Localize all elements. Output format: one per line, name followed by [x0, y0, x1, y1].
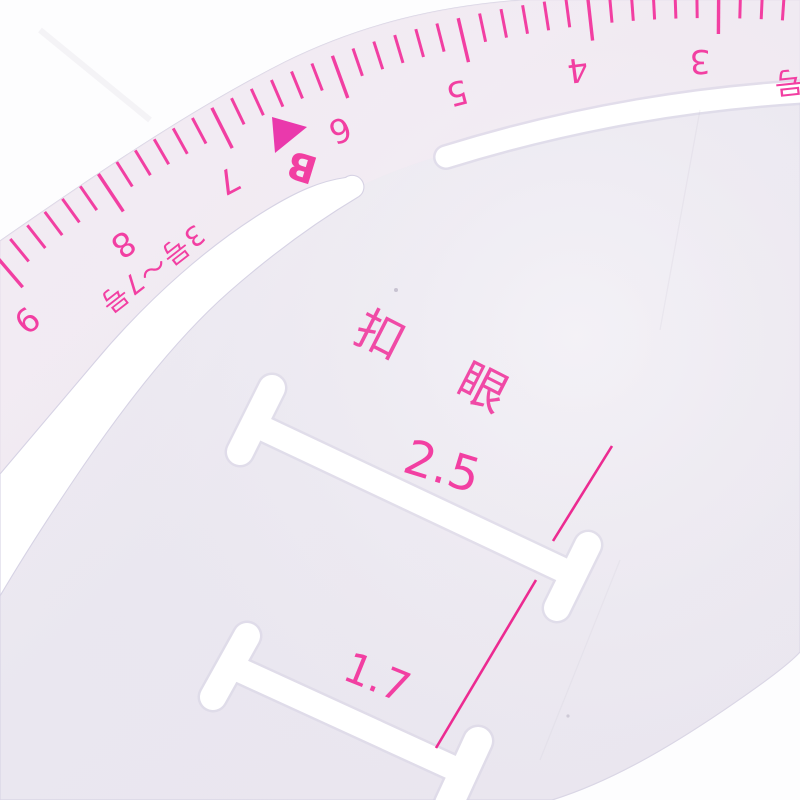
photo-of-sewing-curve-ruler: 9 8 7 6 5 4 3 号 3号～7号 B 扣 眼 2.5 1.7 — [0, 0, 800, 800]
minor-tick — [782, 0, 784, 20]
dust-speck — [394, 288, 398, 292]
scale-number: 3 — [689, 42, 710, 81]
dust-speck — [566, 714, 569, 717]
minor-tick — [675, 0, 676, 19]
minor-tick — [740, 0, 741, 18]
ruler-photo-canvas: 9 8 7 6 5 4 3 号 3号～7号 B 扣 眼 2.5 1.7 — [0, 0, 800, 800]
minor-tick — [761, 0, 762, 19]
minor-tick — [653, 0, 655, 20]
scale-unit-label: 号 — [772, 62, 800, 100]
